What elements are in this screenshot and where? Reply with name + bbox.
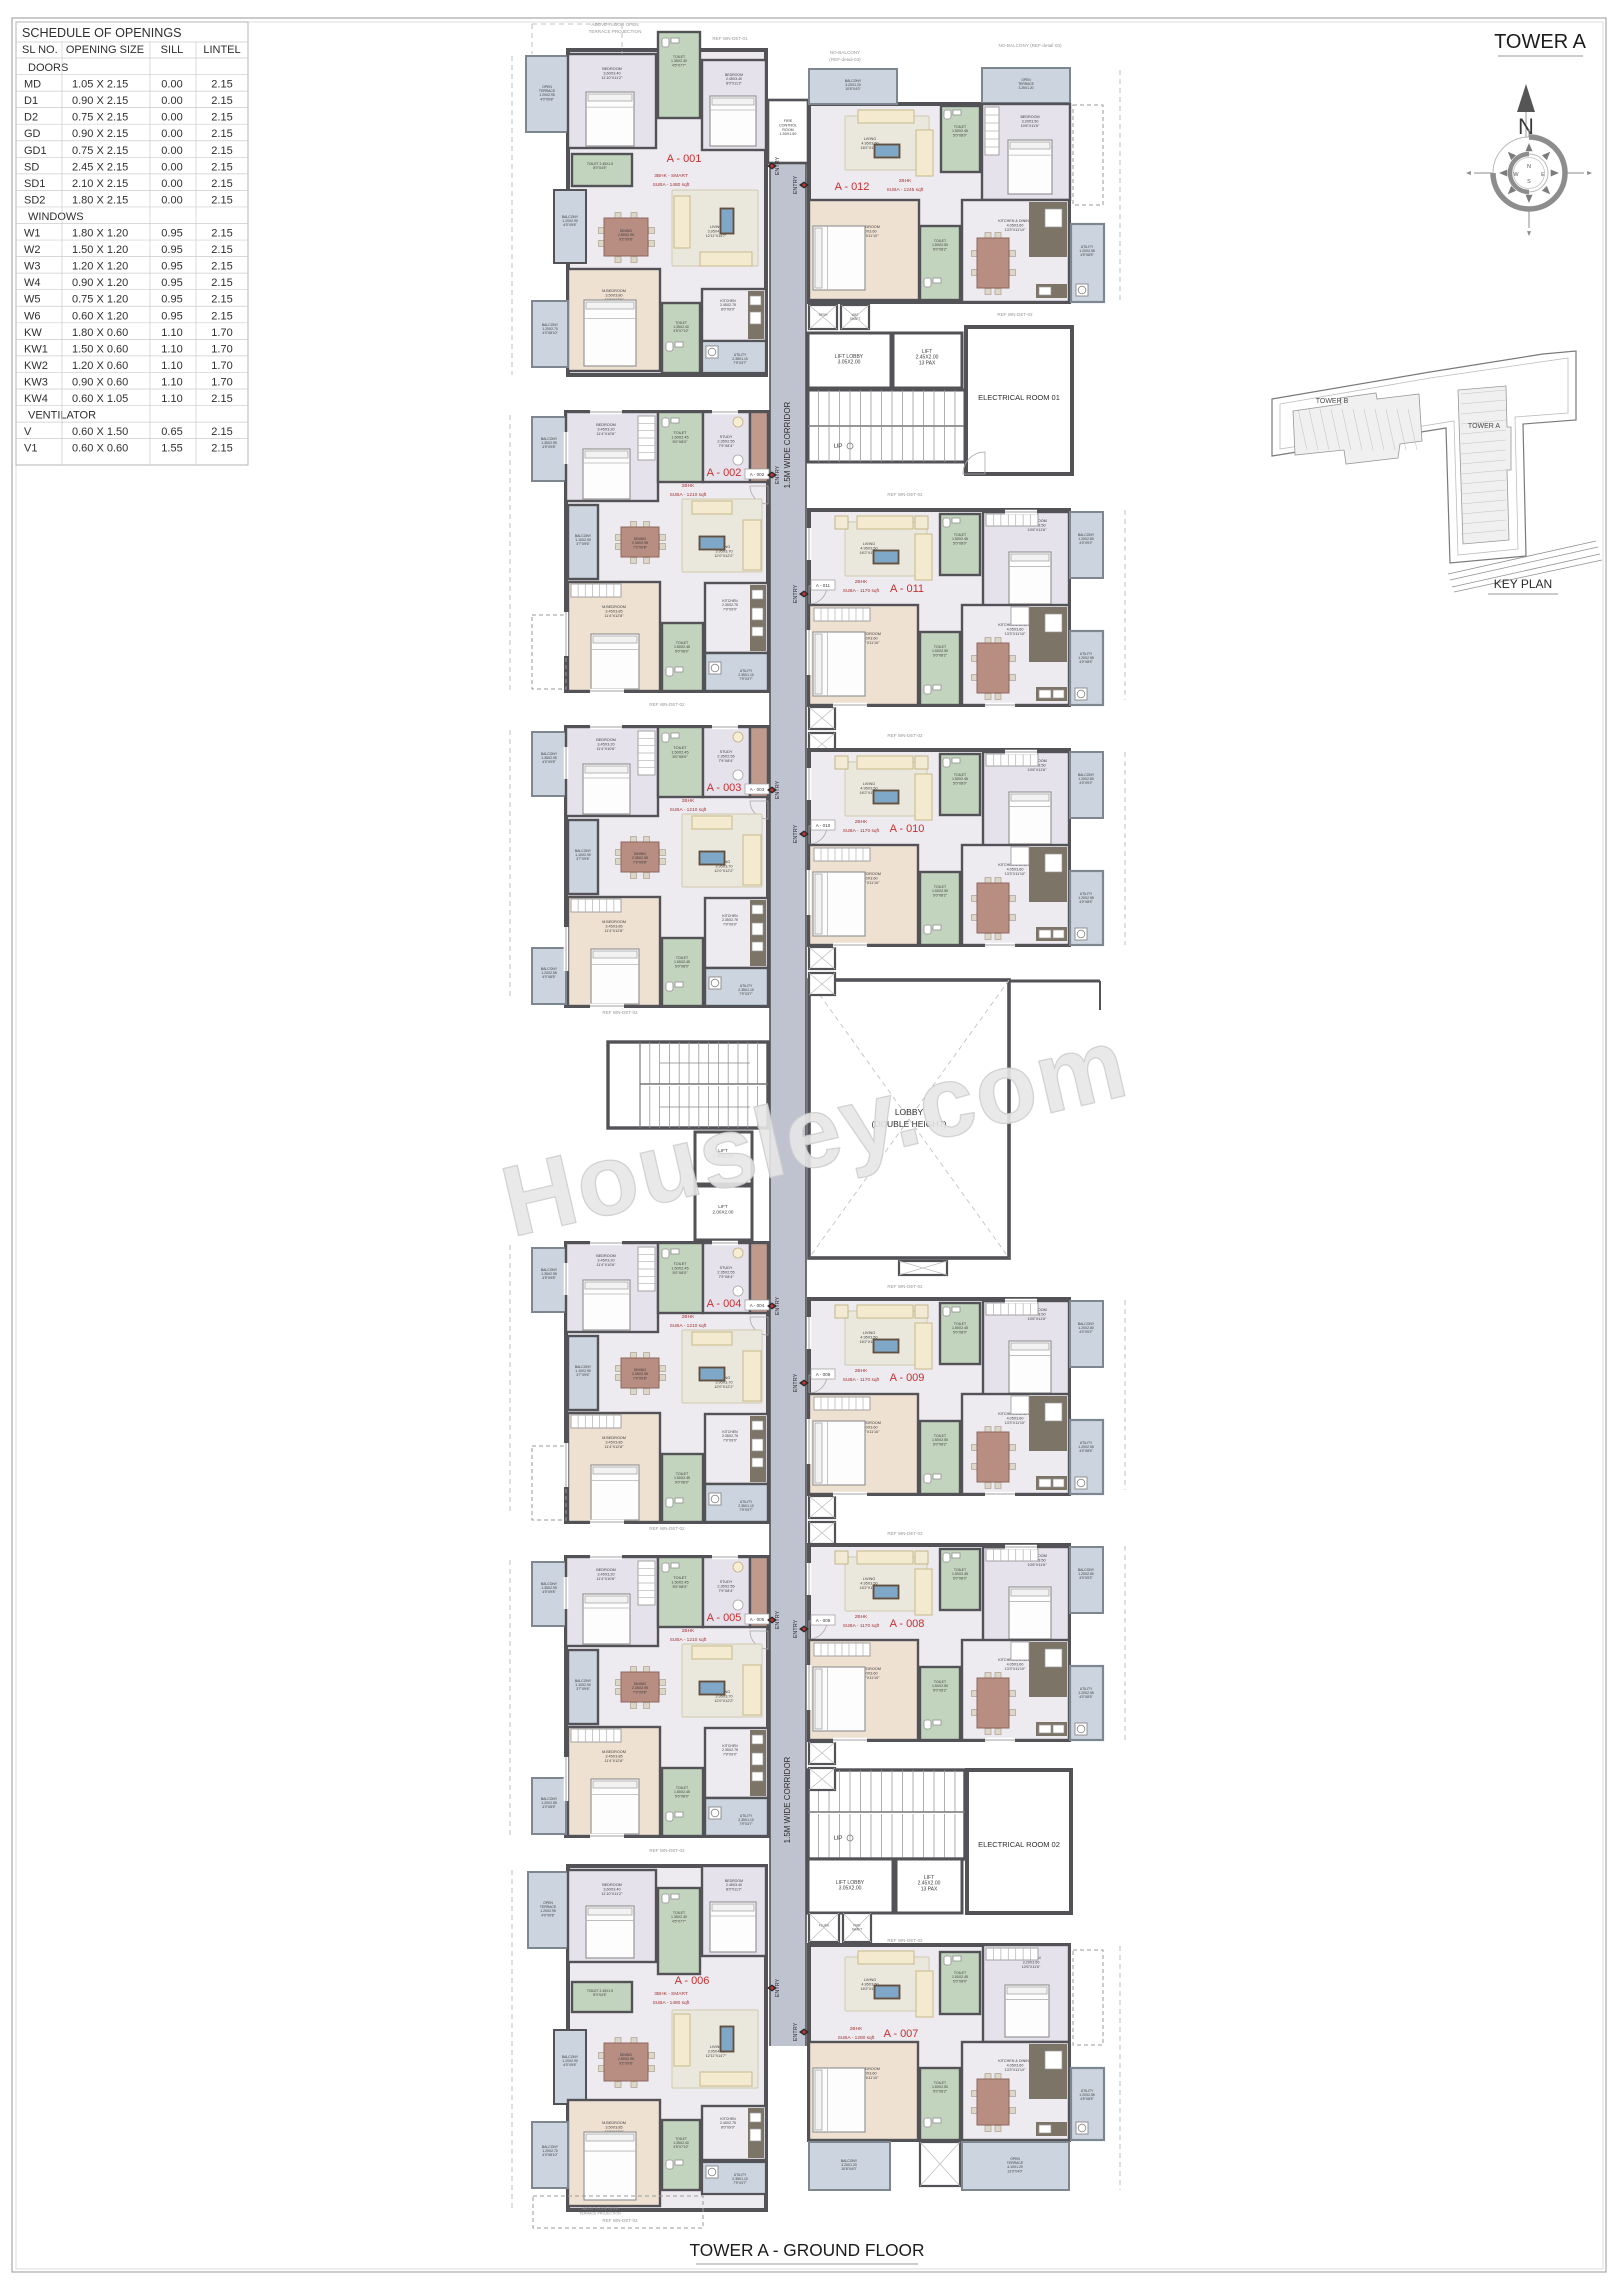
svg-text:0.60 X 1.20: 0.60 X 1.20 bbox=[72, 310, 128, 322]
svg-text:TOILET1.50X2.455'0"X8'0": TOILET1.50X2.455'0"X8'0" bbox=[952, 1322, 968, 1334]
svg-text:W4: W4 bbox=[24, 277, 41, 289]
svg-text:BALCONY1.10X2.903'7"X9'6": BALCONY1.10X2.903'7"X9'6" bbox=[575, 1679, 592, 1691]
svg-text:(REF-detail-03): (REF-detail-03) bbox=[829, 57, 861, 62]
svg-text:SILL: SILL bbox=[161, 44, 184, 56]
svg-text:2BHK: 2BHK bbox=[682, 798, 695, 804]
svg-text:0.90 X 0.60: 0.90 X 0.60 bbox=[72, 376, 128, 388]
svg-text:TOILET1.50X2.455'0"X8'0": TOILET1.50X2.455'0"X8'0" bbox=[674, 641, 690, 653]
svg-text:TOILET1.50X2.455'0"X8'0": TOILET1.50X2.455'0"X8'0" bbox=[952, 125, 968, 137]
svg-text:SUBA - 1280 sqft: SUBA - 1280 sqft bbox=[838, 2035, 875, 2041]
svg-text:2.15: 2.15 bbox=[211, 277, 232, 289]
svg-text:TOILET1.50X2.455'0"X8'0": TOILET1.50X2.455'0"X8'0" bbox=[671, 746, 688, 759]
svg-text:BALCONY1.35X2.954'5"X9'8": BALCONY1.35X2.954'5"X9'8" bbox=[541, 752, 558, 764]
svg-text:STUDY2.35X2.557'9"X8'4": STUDY2.35X2.557'9"X8'4" bbox=[717, 435, 734, 448]
svg-text:1.80 X 2.15: 1.80 X 2.15 bbox=[72, 194, 128, 206]
svg-text:0.00: 0.00 bbox=[161, 178, 182, 190]
svg-text:0.60 X 1.50: 0.60 X 1.50 bbox=[72, 426, 128, 438]
svg-text:2BHK: 2BHK bbox=[850, 2026, 863, 2032]
svg-text:2.15: 2.15 bbox=[211, 79, 232, 91]
svg-text:BALCONY1.10X2.903'7"X9'6": BALCONY1.10X2.903'7"X9'6" bbox=[575, 849, 592, 861]
svg-text:2.15: 2.15 bbox=[211, 112, 232, 124]
svg-text:REF WN-DET-01: REF WN-DET-01 bbox=[712, 36, 748, 41]
svg-text:ENTRY: ENTRY bbox=[793, 1373, 799, 1392]
svg-text:TOILET1.50X2.455'0"X8'0": TOILET1.50X2.455'0"X8'0" bbox=[674, 956, 690, 968]
svg-text:1.70: 1.70 bbox=[211, 360, 232, 372]
svg-text:BALCONY1.35X2.954'5"X9'8": BALCONY1.35X2.954'5"X9'8" bbox=[541, 1582, 558, 1594]
svg-text:2BHK: 2BHK bbox=[855, 579, 868, 585]
svg-text:ENTRY: ENTRY bbox=[775, 1610, 781, 1629]
svg-text:REF WN-DET-02: REF WN-DET-02 bbox=[887, 1284, 923, 1289]
svg-text:N: N bbox=[1527, 164, 1531, 170]
svg-text:DINING2.35X2.957'9"X9'8": DINING2.35X2.957'9"X9'8" bbox=[632, 1682, 648, 1694]
svg-text:DINING2.80X2.959'2"X9'8": DINING2.80X2.959'2"X9'8" bbox=[618, 229, 634, 241]
svg-text:A - 009: A - 009 bbox=[816, 1372, 831, 1377]
svg-text:STUDY2.35X2.557'9"X8'4": STUDY2.35X2.557'9"X8'4" bbox=[717, 1580, 734, 1593]
svg-text:REF WN-DET-02: REF WN-DET-02 bbox=[602, 1010, 638, 1015]
svg-text:0.75 X 2.15: 0.75 X 2.15 bbox=[72, 145, 128, 157]
svg-text:0.65: 0.65 bbox=[161, 426, 182, 438]
svg-text:OPENING SIZE: OPENING SIZE bbox=[66, 44, 144, 56]
svg-text:TOILET1.50X2.505'0"X8'2": TOILET1.50X2.505'0"X8'2" bbox=[932, 885, 948, 897]
svg-text:KITCHEN2.35X2.757'9"X9'0": KITCHEN2.35X2.757'9"X9'0" bbox=[722, 1744, 738, 1756]
svg-text:A - 005: A - 005 bbox=[750, 1617, 765, 1622]
svg-text:TOILET1.50X2.455'0"X8'0": TOILET1.50X2.455'0"X8'0" bbox=[671, 1576, 688, 1589]
svg-text:1.50 X 1.20: 1.50 X 1.20 bbox=[72, 244, 128, 256]
svg-text:2.15: 2.15 bbox=[211, 178, 232, 190]
svg-text:TOILET1.50X2.455'0"X8'0": TOILET1.50X2.455'0"X8'0" bbox=[674, 1472, 690, 1484]
svg-text:ELECTRICAL ROOM 02: ELECTRICAL ROOM 02 bbox=[978, 1840, 1060, 1849]
svg-text:KITCHEN2.45X2.758'0"X9'0": KITCHEN2.45X2.758'0"X9'0" bbox=[720, 299, 736, 311]
svg-text:TOILET1.35X2.304'5"X7'7": TOILET1.35X2.304'5"X7'7" bbox=[671, 55, 687, 67]
svg-text:0.90 X 2.15: 0.90 X 2.15 bbox=[72, 128, 128, 140]
svg-text:2.15: 2.15 bbox=[211, 95, 232, 107]
svg-text:A - 003: A - 003 bbox=[707, 782, 742, 794]
svg-text:ENTRY: ENTRY bbox=[793, 175, 799, 194]
svg-text:STUDY2.35X2.557'9"X8'4": STUDY2.35X2.557'9"X8'4" bbox=[717, 750, 734, 763]
svg-text:RESH: RESH bbox=[819, 313, 829, 317]
svg-text:LINTEL: LINTEL bbox=[203, 44, 240, 56]
svg-text:1.10: 1.10 bbox=[161, 393, 182, 405]
svg-text:REF WN-DET-02: REF WN-DET-02 bbox=[887, 1938, 923, 1943]
svg-text:0.95: 0.95 bbox=[161, 277, 182, 289]
svg-text:3BHK - SMART: 3BHK - SMART bbox=[654, 1991, 688, 1997]
svg-text:REF WN-DET-02: REF WN-DET-02 bbox=[649, 1848, 685, 1853]
svg-text:DINING2.35X2.957'9"X9'8": DINING2.35X2.957'9"X9'8" bbox=[632, 537, 648, 549]
svg-text:0.60 X 0.60: 0.60 X 0.60 bbox=[72, 443, 128, 455]
svg-text:ABOVE FLOOR OPEN: ABOVE FLOOR OPEN bbox=[591, 22, 638, 27]
svg-text:A - 008: A - 008 bbox=[816, 1618, 831, 1623]
svg-text:1.20 X 0.60: 1.20 X 0.60 bbox=[72, 360, 128, 372]
svg-text:3BHK - SMART: 3BHK - SMART bbox=[654, 173, 688, 179]
svg-text:0.95: 0.95 bbox=[161, 294, 182, 306]
svg-text:BEDROOM2.45X3.408'0"X11'2": BEDROOM2.45X3.408'0"X11'2" bbox=[725, 73, 743, 85]
svg-text:0.00: 0.00 bbox=[161, 161, 182, 173]
svg-text:2.15: 2.15 bbox=[211, 244, 232, 256]
svg-text:2.15: 2.15 bbox=[211, 310, 232, 322]
svg-text:BALCONY1.20X2.804'0"X9'2": BALCONY1.20X2.804'0"X9'2" bbox=[1078, 533, 1095, 545]
svg-text:E: E bbox=[1541, 172, 1545, 178]
svg-text:MD: MD bbox=[24, 79, 41, 91]
svg-text:UTILITY1.20X2.554'0"X8'5": UTILITY1.20X2.554'0"X8'5" bbox=[1078, 652, 1094, 664]
svg-text:REF WN-DET-02: REF WN-DET-02 bbox=[887, 1531, 923, 1536]
svg-text:0.00: 0.00 bbox=[161, 112, 182, 124]
svg-text:SUBA - 1210 sqft: SUBA - 1210 sqft bbox=[670, 807, 707, 813]
svg-text:1.10: 1.10 bbox=[161, 376, 182, 388]
svg-text:UTILITY2.35X1.107'9"X3'7": UTILITY2.35X1.107'9"X3'7" bbox=[732, 2173, 748, 2185]
svg-text:TOILET1.50X2.505'0"X8'2": TOILET1.50X2.505'0"X8'2" bbox=[932, 645, 948, 657]
svg-text:TOILET1.50X2.505'0"X8'2": TOILET1.50X2.505'0"X8'2" bbox=[932, 2081, 948, 2093]
svg-text:0.75 X 2.15: 0.75 X 2.15 bbox=[72, 112, 128, 124]
svg-text:1.70: 1.70 bbox=[211, 376, 232, 388]
svg-text:TOILET1.50X2.455'0"X8'0": TOILET1.50X2.455'0"X8'0" bbox=[671, 1262, 688, 1275]
svg-text:1.05 X 2.15: 1.05 X 2.15 bbox=[72, 79, 128, 91]
svg-text:1.80 X 0.60: 1.80 X 0.60 bbox=[72, 327, 128, 339]
svg-text:SUBA - 1170 sqft: SUBA - 1170 sqft bbox=[843, 1623, 880, 1629]
svg-text:ENTRY: ENTRY bbox=[775, 1978, 781, 1997]
svg-text:KW1: KW1 bbox=[24, 343, 48, 355]
svg-text:V: V bbox=[24, 426, 32, 438]
svg-text:ELECTRICAL ROOM 01: ELECTRICAL ROOM 01 bbox=[978, 393, 1060, 402]
svg-text:1.20 X 1.20: 1.20 X 1.20 bbox=[72, 261, 128, 273]
svg-text:A - 010: A - 010 bbox=[816, 823, 831, 828]
svg-text:SL NO.: SL NO. bbox=[22, 44, 58, 56]
svg-text:BALCONY1.20X2.554'0"X8'5": BALCONY1.20X2.554'0"X8'5" bbox=[541, 1797, 558, 1809]
svg-text:0.00: 0.00 bbox=[161, 95, 182, 107]
svg-text:KW2: KW2 bbox=[24, 360, 48, 372]
svg-text:1.5M WIDE CORRIDOR: 1.5M WIDE CORRIDOR bbox=[783, 401, 792, 488]
svg-text:GD: GD bbox=[24, 128, 41, 140]
svg-text:UTILITY2.35X1.107'9"X3'7": UTILITY2.35X1.107'9"X3'7" bbox=[738, 1500, 754, 1512]
svg-text:ENTRY: ENTRY bbox=[775, 156, 781, 175]
svg-text:BEDROOM3.45X3.2011'4"X10'6": BEDROOM3.45X3.2011'4"X10'6" bbox=[596, 423, 616, 436]
svg-text:2.10 X 2.15: 2.10 X 2.15 bbox=[72, 178, 128, 190]
svg-text:1.5M WIDE CORRIDOR: 1.5M WIDE CORRIDOR bbox=[783, 1756, 792, 1843]
svg-text:REF WN-DET-02: REF WN-DET-02 bbox=[997, 312, 1033, 317]
svg-text:D2: D2 bbox=[24, 112, 38, 124]
svg-text:TOILET1.50X2.455'0"X8'0": TOILET1.50X2.455'0"X8'0" bbox=[674, 1786, 690, 1798]
svg-text:W2: W2 bbox=[24, 244, 41, 256]
svg-text:LIFT LOBBY3.05X2.00: LIFT LOBBY3.05X2.00 bbox=[836, 1880, 865, 1892]
svg-text:W6: W6 bbox=[24, 310, 41, 322]
svg-text:2.15: 2.15 bbox=[211, 194, 232, 206]
svg-text:UTILITY1.20X2.554'5"X8'5": UTILITY1.20X2.554'5"X8'5" bbox=[1079, 245, 1095, 257]
svg-text:UTILITY2.35X1.107'9"X3'7": UTILITY2.35X1.107'9"X3'7" bbox=[732, 353, 748, 365]
svg-text:ENTRY: ENTRY bbox=[775, 780, 781, 799]
svg-text:KITCHEN2.35X2.757'9"X9'0": KITCHEN2.35X2.757'9"X9'0" bbox=[722, 599, 738, 611]
svg-text:BALCONY1.10X2.903'7"X9'6": BALCONY1.10X2.903'7"X9'6" bbox=[575, 534, 592, 546]
svg-text:ENTRY: ENTRY bbox=[775, 1296, 781, 1315]
svg-text:0.95: 0.95 bbox=[161, 261, 182, 273]
svg-text:BALCONY1.20X2.554'0"X8'5": BALCONY1.20X2.554'0"X8'5" bbox=[541, 967, 558, 979]
svg-text:0.00: 0.00 bbox=[161, 145, 182, 157]
svg-text:1.80 X 1.20: 1.80 X 1.20 bbox=[72, 228, 128, 240]
svg-text:REF WN-DET-02: REF WN-DET-02 bbox=[887, 733, 923, 738]
svg-text:0.95: 0.95 bbox=[161, 228, 182, 240]
svg-text:A - 011: A - 011 bbox=[816, 583, 831, 588]
svg-text:UTILITY1.20X2.554'5"X8'5": UTILITY1.20X2.554'5"X8'5" bbox=[1079, 2089, 1095, 2101]
svg-text:0.60 X 1.05: 0.60 X 1.05 bbox=[72, 393, 128, 405]
svg-text:1.70: 1.70 bbox=[211, 343, 232, 355]
svg-text:1.50 X 0.60: 1.50 X 0.60 bbox=[72, 343, 128, 355]
svg-text:2.15: 2.15 bbox=[211, 443, 232, 455]
svg-text:BALCONY1.20X2.704'0"X8'10": BALCONY1.20X2.704'0"X8'10" bbox=[542, 323, 559, 335]
svg-text:NO-BALCONY (REF-detail-03): NO-BALCONY (REF-detail-03) bbox=[999, 43, 1062, 48]
svg-text:TOILET1.50X2.455'0"X8'0": TOILET1.50X2.455'0"X8'0" bbox=[952, 773, 968, 785]
svg-text:W1: W1 bbox=[24, 228, 41, 240]
svg-text:KEY PLAN: KEY PLAN bbox=[1494, 577, 1552, 591]
svg-text:BALCONY1.20X2.704'0"X8'10": BALCONY1.20X2.704'0"X8'10" bbox=[542, 2145, 559, 2157]
svg-text:GD1: GD1 bbox=[24, 145, 47, 157]
svg-text:FLUSH: FLUSH bbox=[819, 1924, 830, 1928]
svg-text:BALCONY1.20X2.804'0"X9'2": BALCONY1.20X2.804'0"X9'2" bbox=[1078, 1568, 1095, 1580]
svg-text:A - 002: A - 002 bbox=[707, 467, 742, 479]
svg-text:TOWER A - GROUND FLOOR: TOWER A - GROUND FLOOR bbox=[690, 2240, 925, 2260]
svg-text:KW4: KW4 bbox=[24, 393, 48, 405]
svg-text:BEDROOM3.60X3.4011'10"X11'2": BEDROOM3.60X3.4011'10"X11'2" bbox=[602, 67, 624, 80]
svg-text:2BHK: 2BHK bbox=[682, 1314, 695, 1320]
svg-text:2.15: 2.15 bbox=[211, 426, 232, 438]
svg-text:TOWER A: TOWER A bbox=[1468, 423, 1500, 430]
svg-text:A - 004: A - 004 bbox=[707, 1298, 742, 1310]
svg-text:A - 001: A - 001 bbox=[667, 153, 702, 165]
svg-text:ENTRY: ENTRY bbox=[775, 465, 781, 484]
svg-text:ENTRY: ENTRY bbox=[793, 824, 799, 843]
svg-text:W3: W3 bbox=[24, 261, 41, 273]
svg-text:2.15: 2.15 bbox=[211, 128, 232, 140]
svg-text:A - 005: A - 005 bbox=[707, 1612, 742, 1624]
svg-text:REF WN-DET-02: REF WN-DET-02 bbox=[649, 702, 685, 707]
svg-text:2.15: 2.15 bbox=[211, 294, 232, 306]
svg-text:A - 008: A - 008 bbox=[890, 1618, 925, 1630]
svg-text:M.BEDROOM3.45X3.8511'4"X12'8": M.BEDROOM3.45X3.8511'4"X12'8" bbox=[602, 1750, 626, 1763]
svg-text:TOILET1.50X2.455'0"X8'0": TOILET1.50X2.455'0"X8'0" bbox=[671, 431, 688, 444]
svg-text:KITCHEN2.35X2.757'9"X9'0": KITCHEN2.35X2.757'9"X9'0" bbox=[722, 1430, 738, 1442]
svg-text:0.95: 0.95 bbox=[161, 244, 182, 256]
svg-text:BALCONY1.10X2.903'7"X9'6": BALCONY1.10X2.903'7"X9'6" bbox=[575, 1365, 592, 1377]
svg-text:D1: D1 bbox=[24, 95, 38, 107]
svg-text:2.45 X 2.15: 2.45 X 2.15 bbox=[72, 161, 128, 173]
svg-text:0.90 X 2.15: 0.90 X 2.15 bbox=[72, 95, 128, 107]
svg-text:TOWER B: TOWER B bbox=[1316, 398, 1349, 405]
svg-text:A - 010: A - 010 bbox=[890, 823, 925, 835]
svg-text:BEDROOM2.45X3.408'0"X11'2": BEDROOM2.45X3.408'0"X11'2" bbox=[725, 1879, 743, 1891]
svg-text:TOILET1.50X2.505'0"X8'2": TOILET1.50X2.505'0"X8'2" bbox=[932, 1434, 948, 1446]
svg-text:BALCONY1.20X2.904'0"X9'6": BALCONY1.20X2.904'0"X9'6" bbox=[562, 215, 579, 227]
svg-text:2BHK: 2BHK bbox=[899, 178, 912, 184]
svg-text:2BHK: 2BHK bbox=[855, 1368, 868, 1374]
svg-text:KITCHEN2.45X2.758'0"X9'0": KITCHEN2.45X2.758'0"X9'0" bbox=[720, 2117, 736, 2129]
svg-text:ENTRY: ENTRY bbox=[793, 584, 799, 603]
svg-text:ENTRY: ENTRY bbox=[793, 1619, 799, 1638]
svg-text:0.75 X 1.20: 0.75 X 1.20 bbox=[72, 294, 128, 306]
svg-text:SUBA - 1480 sqft: SUBA - 1480 sqft bbox=[653, 182, 690, 188]
svg-text:SCHEDULE OF OPENINGS: SCHEDULE OF OPENINGS bbox=[22, 26, 182, 40]
svg-text:SUBA - 1245 sqft: SUBA - 1245 sqft bbox=[887, 187, 924, 193]
svg-text:KITCHEN2.35X2.757'9"X9'0": KITCHEN2.35X2.757'9"X9'0" bbox=[722, 914, 738, 926]
svg-text:A - 002: A - 002 bbox=[750, 472, 765, 477]
svg-text:REF WN-DET-02: REF WN-DET-02 bbox=[887, 492, 923, 497]
svg-text:ENTRY: ENTRY bbox=[793, 2022, 799, 2041]
svg-text:BEDROOM3.45X3.2011'4"X10'6": BEDROOM3.45X3.2011'4"X10'6" bbox=[596, 1568, 616, 1581]
svg-text:UTILITY2.35X1.107'9"X3'7": UTILITY2.35X1.107'9"X3'7" bbox=[738, 984, 754, 996]
svg-text:SUBA - 1170 sqft: SUBA - 1170 sqft bbox=[843, 828, 880, 834]
svg-text:W5: W5 bbox=[24, 294, 41, 306]
svg-text:A - 006: A - 006 bbox=[675, 1975, 710, 1987]
svg-text:S: S bbox=[1527, 179, 1531, 185]
svg-text:BEDROOM3.45X3.2011'4"X10'6": BEDROOM3.45X3.2011'4"X10'6" bbox=[596, 738, 616, 751]
svg-text:REF WN-DET-02: REF WN-DET-02 bbox=[602, 2218, 638, 2223]
svg-text:KW3: KW3 bbox=[24, 376, 48, 388]
svg-text:BEDROOM3.45X3.2011'4"X10'6": BEDROOM3.45X3.2011'4"X10'6" bbox=[596, 1254, 616, 1267]
svg-text:SUBA - 1210 sqft: SUBA - 1210 sqft bbox=[670, 492, 707, 498]
svg-text:2BHK: 2BHK bbox=[682, 483, 695, 489]
svg-text:BALCONY3.20X1.2010'6"X4'0": BALCONY3.20X1.2010'6"X4'0" bbox=[841, 2159, 858, 2171]
svg-text:NO-BALCONY: NO-BALCONY bbox=[830, 50, 860, 55]
svg-text:UTILITY1.20X2.554'0"X8'5": UTILITY1.20X2.554'0"X8'5" bbox=[1078, 892, 1094, 904]
svg-text:1.10: 1.10 bbox=[161, 327, 182, 339]
svg-text:1.10: 1.10 bbox=[161, 343, 182, 355]
svg-text:TOILET1.50X2.455'0"X8'0": TOILET1.50X2.455'0"X8'0" bbox=[952, 1971, 968, 1983]
svg-text:UTILITY2.35X1.107'9"X3'7": UTILITY2.35X1.107'9"X3'7" bbox=[738, 669, 754, 681]
svg-text:0.90 X 1.20: 0.90 X 1.20 bbox=[72, 277, 128, 289]
svg-text:BALCONY1.20X2.904'0"X9'6": BALCONY1.20X2.904'0"X9'6" bbox=[562, 2055, 579, 2067]
svg-text:1.55: 1.55 bbox=[161, 443, 182, 455]
svg-text:UTILITY2.35X1.107'9"X3'7": UTILITY2.35X1.107'9"X3'7" bbox=[738, 1814, 754, 1826]
svg-text:2.15: 2.15 bbox=[211, 393, 232, 405]
svg-text:M.BEDROOM3.45X3.8511'4"X12'8": M.BEDROOM3.45X3.8511'4"X12'8" bbox=[602, 605, 626, 618]
svg-text:SD: SD bbox=[24, 161, 39, 173]
svg-text:V1: V1 bbox=[24, 443, 37, 455]
svg-text:TOILET1.50X2.505'0"X8'2": TOILET1.50X2.505'0"X8'2" bbox=[932, 1680, 948, 1692]
svg-text:0.00: 0.00 bbox=[161, 79, 182, 91]
svg-text:A - 011: A - 011 bbox=[890, 583, 924, 595]
svg-text:UP: UP bbox=[833, 1835, 842, 1842]
svg-text:1.70: 1.70 bbox=[211, 327, 232, 339]
svg-text:UTILITY1.20X2.554'0"X8'5": UTILITY1.20X2.554'0"X8'5" bbox=[1078, 1687, 1094, 1699]
svg-text:STUDY2.35X2.557'9"X8'4": STUDY2.35X2.557'9"X8'4" bbox=[717, 1266, 734, 1279]
svg-text:M.BEDROOM3.45X3.8511'4"X12'8": M.BEDROOM3.45X3.8511'4"X12'8" bbox=[602, 920, 626, 933]
svg-text:2.15: 2.15 bbox=[211, 261, 232, 273]
svg-text:BEDROOM3.60X3.4011'10"X11'2": BEDROOM3.60X3.4011'10"X11'2" bbox=[602, 1883, 624, 1896]
svg-text:BALCONY1.35X2.954'5"X9'8": BALCONY1.35X2.954'5"X9'8" bbox=[541, 1268, 558, 1280]
svg-text:M.BEDROOM3.45X3.8511'4"X12'8": M.BEDROOM3.45X3.8511'4"X12'8" bbox=[602, 1436, 626, 1449]
svg-text:SD2: SD2 bbox=[24, 194, 45, 206]
svg-text:A - 004: A - 004 bbox=[750, 1303, 765, 1308]
svg-text:KW: KW bbox=[24, 327, 42, 339]
svg-text:A - 012: A - 012 bbox=[835, 181, 870, 193]
svg-text:DINING2.80X2.959'2"X9'8": DINING2.80X2.959'2"X9'8" bbox=[618, 2053, 634, 2065]
svg-text:SUBA - 1480 sqft: SUBA - 1480 sqft bbox=[653, 2000, 690, 2006]
svg-text:A - 003: A - 003 bbox=[750, 787, 765, 792]
svg-text:TOILET1.35X2.304'5"X7'7": TOILET1.35X2.304'5"X7'7" bbox=[671, 1911, 687, 1923]
svg-text:LIFT LOBBY3.05X2.00: LIFT LOBBY3.05X2.00 bbox=[835, 354, 864, 366]
svg-text:BEDROOM3.20X3.5010'6"X11'6": BEDROOM3.20X3.5010'6"X11'6" bbox=[1020, 115, 1039, 128]
svg-text:2.15: 2.15 bbox=[211, 161, 232, 173]
svg-text:A - 009: A - 009 bbox=[890, 1372, 925, 1384]
svg-text:TOILET1.50X2.505'0"X8'2": TOILET1.50X2.505'0"X8'2" bbox=[932, 239, 948, 251]
svg-text:2BHK: 2BHK bbox=[855, 819, 868, 825]
svg-text:TERRACE PROJECTION: TERRACE PROJECTION bbox=[589, 29, 642, 34]
svg-text:REF WN-DET-02: REF WN-DET-02 bbox=[649, 1526, 685, 1531]
svg-text:BALCONY1.20X2.804'0"X9'2": BALCONY1.20X2.804'0"X9'2" bbox=[1078, 1322, 1095, 1334]
svg-text:0.00: 0.00 bbox=[161, 128, 182, 140]
svg-text:0.00: 0.00 bbox=[161, 194, 182, 206]
svg-text:UP: UP bbox=[833, 443, 842, 450]
svg-text:SD1: SD1 bbox=[24, 178, 45, 190]
svg-text:BALCONY1.20X2.804'0"X9'2": BALCONY1.20X2.804'0"X9'2" bbox=[1078, 773, 1095, 785]
svg-text:SUBA - 1170 sqft: SUBA - 1170 sqft bbox=[843, 588, 880, 594]
svg-text:2.15: 2.15 bbox=[211, 228, 232, 240]
svg-text:DINING2.35X2.957'9"X9'8": DINING2.35X2.957'9"X9'8" bbox=[632, 1368, 648, 1380]
svg-text:2BHK: 2BHK bbox=[855, 1614, 868, 1620]
svg-text:WINDOWS: WINDOWS bbox=[28, 211, 84, 223]
svg-text:SUBA - 1210 sqft: SUBA - 1210 sqft bbox=[670, 1323, 707, 1329]
svg-text:ABOVE FLOOR OPENTERRACE PRO: ABOVE FLOOR OPENTERRACE PROJECTION bbox=[579, 2207, 621, 2215]
svg-text:SUBA - 1170 sqft: SUBA - 1170 sqft bbox=[843, 1377, 880, 1383]
svg-text:A - 007: A - 007 bbox=[884, 2028, 919, 2040]
svg-text:0.95: 0.95 bbox=[161, 310, 182, 322]
svg-text:SUBA - 1210 sqft: SUBA - 1210 sqft bbox=[670, 1637, 707, 1643]
svg-text:UTILITY1.20X2.554'0"X8'5": UTILITY1.20X2.554'0"X8'5" bbox=[1078, 1441, 1094, 1453]
svg-text:BALCONY3.20X1.2010'6"X4'0": BALCONY3.20X1.2010'6"X4'0" bbox=[845, 79, 862, 91]
svg-text:1.10: 1.10 bbox=[161, 360, 182, 372]
svg-text:TOWER A: TOWER A bbox=[1494, 31, 1587, 53]
svg-text:TOILET1.50X2.455'0"X8'0": TOILET1.50X2.455'0"X8'0" bbox=[952, 1568, 968, 1580]
svg-text:BALCONY1.35X2.954'5"X9'8": BALCONY1.35X2.954'5"X9'8" bbox=[541, 437, 558, 449]
svg-text:TOILET1.50X2.455'0"X8'0": TOILET1.50X2.455'0"X8'0" bbox=[952, 533, 968, 545]
svg-text:W: W bbox=[1513, 172, 1519, 178]
svg-text:2BHK: 2BHK bbox=[682, 1628, 695, 1634]
svg-text:2.15: 2.15 bbox=[211, 145, 232, 157]
svg-text:DINING2.35X2.957'9"X9'8": DINING2.35X2.957'9"X9'8" bbox=[632, 852, 648, 864]
